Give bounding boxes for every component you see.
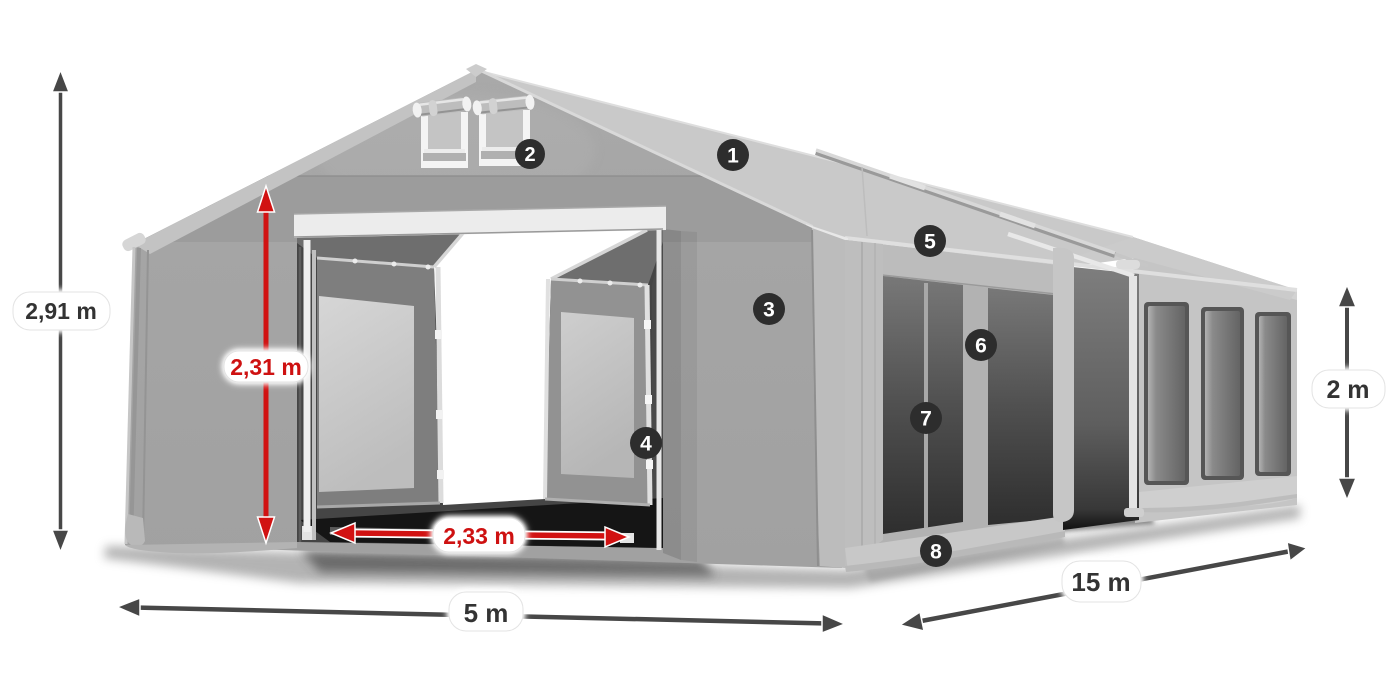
svg-text:2,91 m: 2,91 m <box>25 298 97 324</box>
svg-text:8: 8 <box>930 541 942 564</box>
svg-text:3: 3 <box>763 299 775 322</box>
svg-text:4: 4 <box>640 433 652 456</box>
svg-text:5: 5 <box>924 231 936 254</box>
svg-text:2: 2 <box>524 144 535 166</box>
svg-text:2,33 m: 2,33 m <box>443 523 515 549</box>
svg-text:1: 1 <box>727 145 739 168</box>
svg-text:15 m: 15 m <box>1071 567 1130 597</box>
svg-text:5 m: 5 m <box>464 598 509 628</box>
svg-text:2 m: 2 m <box>1326 376 1369 404</box>
svg-text:6: 6 <box>975 335 987 358</box>
svg-text:2,31 m: 2,31 m <box>230 354 302 380</box>
svg-text:7: 7 <box>920 408 932 431</box>
